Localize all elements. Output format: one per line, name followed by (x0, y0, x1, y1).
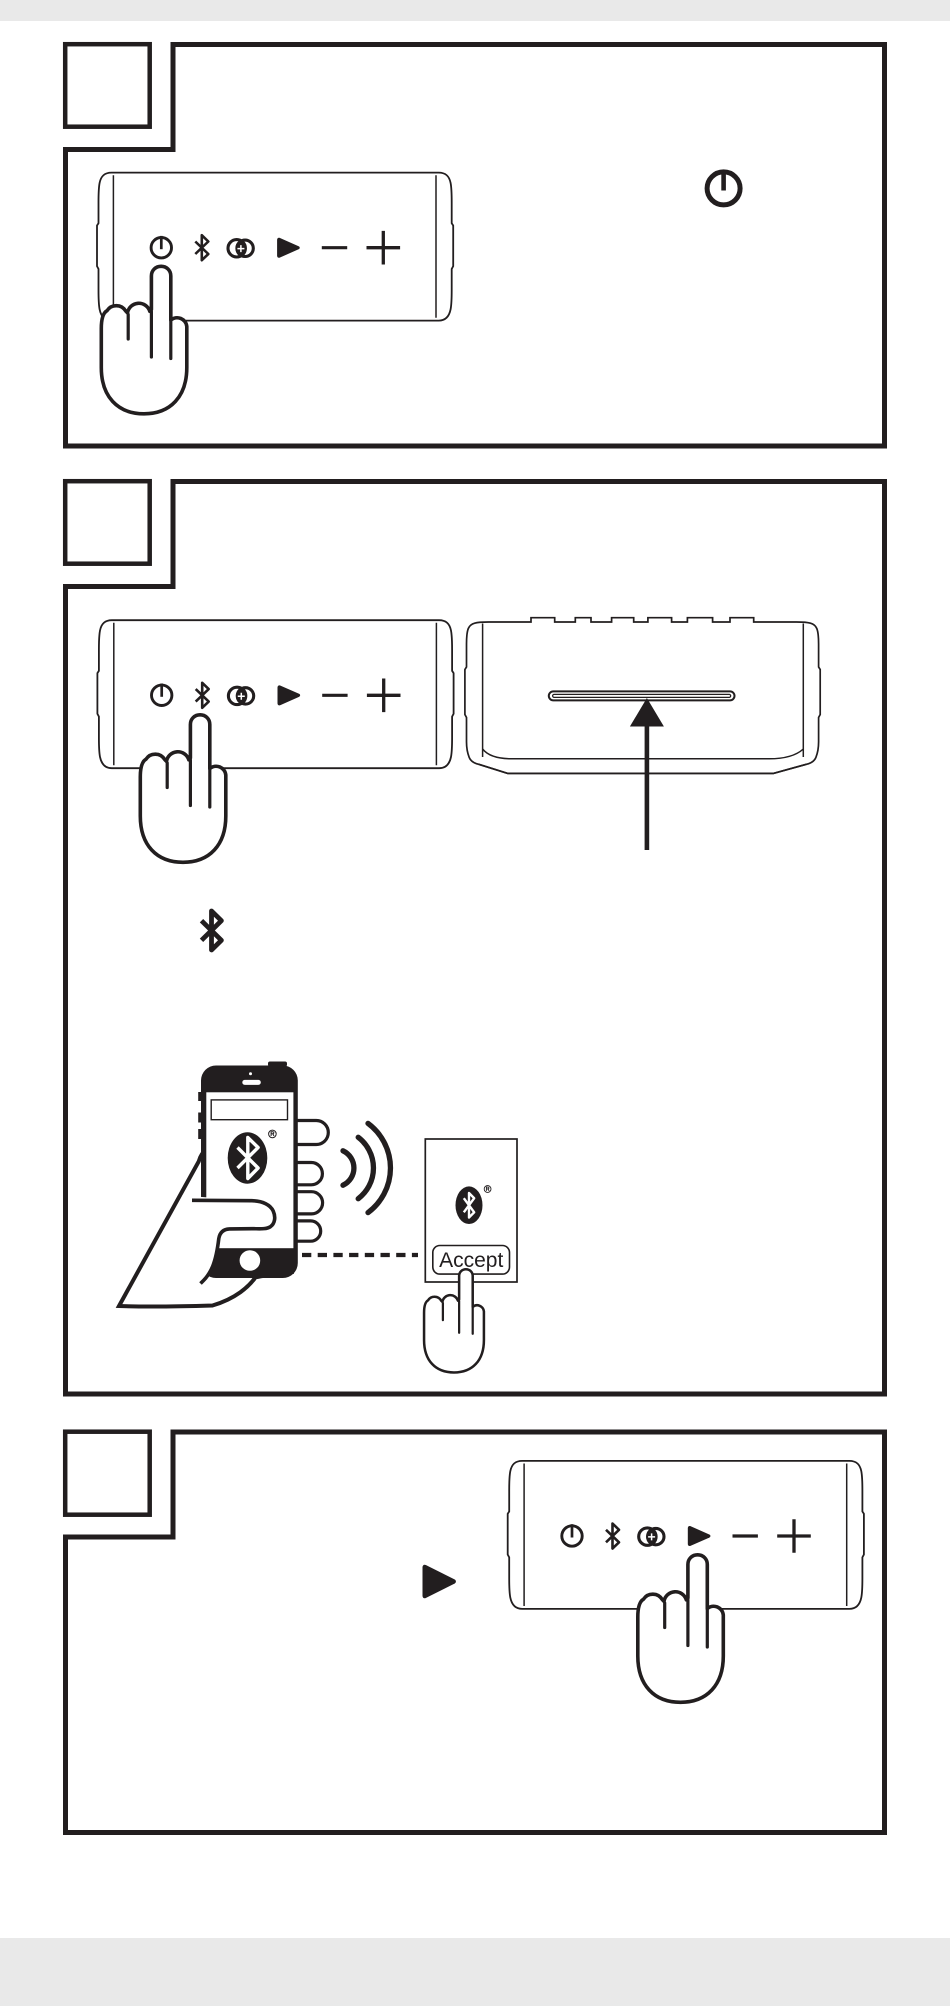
svg-text:Accept: Accept (439, 1249, 503, 1272)
